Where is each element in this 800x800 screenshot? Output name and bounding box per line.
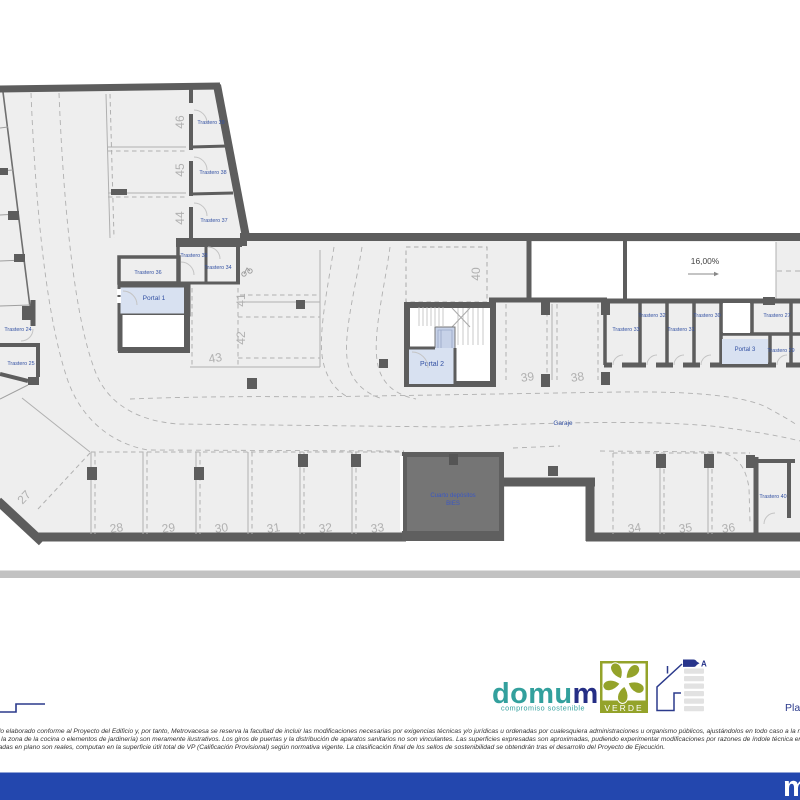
svg-text:28: 28 [109, 520, 124, 536]
svg-text:Trastero 24: Trastero 24 [4, 327, 31, 333]
svg-text:sido elaborado conforme al Pro: sido elaborado conforme al Proyecto del … [0, 728, 800, 735]
svg-text:Trastero 39: Trastero 39 [197, 120, 224, 126]
svg-text:39: 39 [520, 369, 535, 385]
svg-text:30: 30 [214, 520, 229, 536]
svg-text:36: 36 [721, 520, 736, 536]
svg-text:34: 34 [627, 520, 642, 536]
svg-text:Trastero 30: Trastero 30 [693, 313, 720, 319]
svg-text:41: 41 [234, 293, 248, 307]
svg-text:Trastero 40: Trastero 40 [759, 494, 786, 500]
svg-text:31: 31 [266, 520, 281, 536]
svg-text:Trastero 37: Trastero 37 [200, 218, 227, 224]
svg-text:Trastero 25: Trastero 25 [7, 361, 34, 367]
svg-text:45: 45 [173, 163, 187, 177]
svg-text:Pla: Pla [785, 702, 800, 714]
svg-text:Trastero 31: Trastero 31 [667, 327, 694, 333]
svg-text:Trastero 32: Trastero 32 [638, 313, 665, 319]
svg-text:lejadas en plano son reales, c: lejadas en plano son reales, computan en… [0, 744, 665, 751]
svg-text:BIES: BIES [446, 501, 460, 507]
svg-text:38: 38 [570, 369, 585, 385]
svg-text:33: 33 [370, 520, 385, 536]
svg-text:Trastero 34: Trastero 34 [204, 265, 231, 271]
svg-text:Trastero 27: Trastero 27 [763, 313, 790, 319]
svg-text:Trastero 38: Trastero 38 [199, 170, 226, 176]
svg-text:Portal 2: Portal 2 [420, 361, 444, 368]
svg-text:40: 40 [469, 267, 483, 281]
svg-text:44: 44 [173, 211, 187, 225]
svg-text:Cuarto depósitos: Cuarto depósitos [430, 493, 475, 499]
svg-text:Trastero 33: Trastero 33 [612, 327, 639, 333]
svg-text:42: 42 [234, 331, 248, 345]
svg-text:VERDE: VERDE [604, 703, 643, 713]
svg-text:m: m [783, 771, 800, 800]
svg-text:Trastero 29: Trastero 29 [767, 348, 794, 354]
svg-text:Trastero 35: Trastero 35 [180, 253, 207, 259]
svg-text:32: 32 [318, 520, 333, 536]
svg-text:46: 46 [173, 115, 187, 129]
svg-text:43: 43 [208, 350, 224, 366]
svg-text:Garaje: Garaje [553, 420, 573, 427]
svg-text:en la zona de la cocina o elem: en la zona de la cocina o elementos de j… [0, 736, 800, 743]
svg-text:Portal 3: Portal 3 [735, 347, 756, 353]
svg-text:Portal 1: Portal 1 [143, 295, 166, 302]
svg-text:35: 35 [678, 520, 693, 536]
svg-text:16,00%: 16,00% [691, 256, 720, 266]
svg-text:29: 29 [161, 520, 176, 536]
svg-text:compromiso sostenible: compromiso sostenible [501, 704, 585, 713]
svg-text:Trastero 36: Trastero 36 [134, 270, 161, 276]
svg-text:A: A [701, 660, 707, 669]
